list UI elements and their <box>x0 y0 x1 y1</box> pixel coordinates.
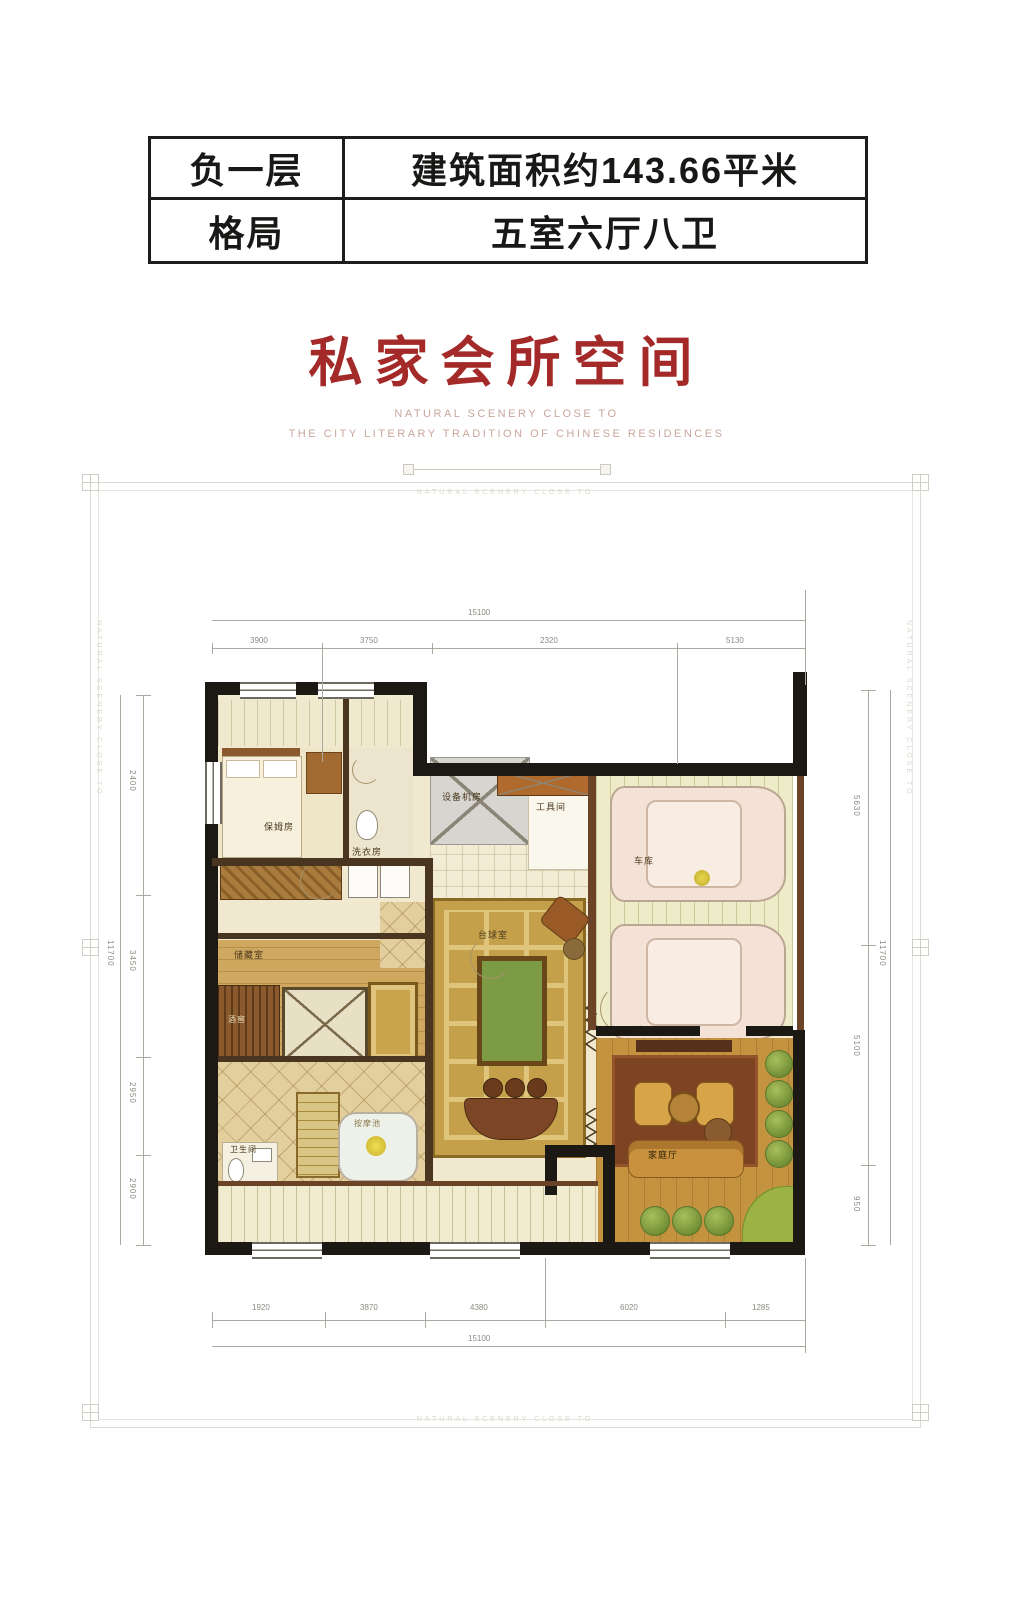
side-table <box>563 938 585 960</box>
interior-wall <box>218 1181 598 1186</box>
spec-row2-label: 格局 <box>151 200 345 261</box>
dresser <box>306 752 342 794</box>
window <box>205 762 222 824</box>
dim-tick <box>725 1312 726 1328</box>
hall-rug <box>368 982 418 1062</box>
corner-mark <box>82 1404 99 1421</box>
dim-tick <box>545 1258 546 1328</box>
room-label-storage: 储藏室 <box>234 948 264 961</box>
dim-tick <box>212 643 213 654</box>
dim-bottom-total: 15100 <box>468 1334 490 1343</box>
dim-left-seg2: 3450 <box>128 950 137 972</box>
toilet-icon <box>228 1158 244 1182</box>
spa-flower-icon <box>366 1136 386 1156</box>
dim-tick <box>861 945 876 946</box>
dim-tick <box>136 1155 151 1156</box>
interior-wall <box>218 1056 425 1062</box>
spec-row2-value: 五室六厅八卫 <box>345 200 865 261</box>
dim-line-left-total <box>120 695 121 1245</box>
dim-tick <box>212 1312 213 1328</box>
ornament-line <box>410 469 602 470</box>
dim-tick <box>136 695 151 696</box>
dim-extension <box>322 652 323 762</box>
dim-tick <box>432 643 433 654</box>
dim-tick <box>861 690 876 691</box>
toilet-icon <box>356 810 378 840</box>
sofa <box>628 1140 744 1178</box>
garage-side-wall <box>797 776 804 1030</box>
frame-caption-top: NATURAL SCENERY CLOSE TO <box>417 489 594 496</box>
armchair <box>634 1082 672 1126</box>
tv-cabinet <box>636 1040 732 1052</box>
window <box>430 1242 520 1259</box>
dim-top-seg4: 5130 <box>726 636 744 645</box>
stairs <box>296 1092 340 1178</box>
bar-stool <box>483 1078 503 1098</box>
garden-bush <box>765 1140 793 1168</box>
room-label-bedroom: 保姆房 <box>264 820 294 833</box>
dim-tick <box>136 1245 151 1246</box>
dim-bottom-seg4: 6020 <box>620 1303 638 1312</box>
door-arc <box>470 937 512 979</box>
spec-row1-value: 建筑面积约143.66平米 <box>345 139 865 200</box>
dim-left-seg3: 2950 <box>128 1082 137 1104</box>
subtitle-line2: THE CITY LITERARY TRADITION OF CHINESE R… <box>0 428 1013 440</box>
dim-bottom-seg5: 1285 <box>752 1303 770 1312</box>
subtitle-line1: NATURAL SCENERY CLOSE TO <box>0 408 1013 420</box>
room-label-billiards: 台球室 <box>478 928 508 941</box>
room-label-bath: 卫生间 <box>230 1144 257 1155</box>
dim-tick <box>136 895 151 896</box>
dim-right-total: 11700 <box>878 940 887 967</box>
dim-tick <box>805 1258 806 1353</box>
interior-wall <box>218 933 425 939</box>
outer-wall <box>413 682 427 776</box>
edge-mark-left <box>82 939 99 956</box>
window-well-strip <box>218 700 413 746</box>
dim-tick <box>136 1057 151 1058</box>
room-label-family: 家庭厅 <box>648 1148 678 1161</box>
room-label-garage: 车库 <box>634 854 654 867</box>
dim-extension <box>805 590 806 685</box>
ornament-square-left <box>403 464 414 475</box>
interior-wall <box>596 1026 700 1036</box>
dim-tick <box>425 1312 426 1328</box>
elevator <box>282 987 368 1062</box>
spec-row1-label: 负一层 <box>151 139 345 200</box>
door-arc <box>300 862 338 900</box>
dim-line-right-seg <box>868 690 869 1245</box>
dim-tick <box>861 1165 876 1166</box>
outer-wall <box>793 1030 805 1255</box>
edge-mark-right <box>912 939 929 956</box>
pillow <box>226 760 260 778</box>
window <box>240 682 296 699</box>
outer-wall <box>205 682 427 695</box>
outer-wall <box>545 1145 557 1195</box>
interior-wall <box>425 858 433 1185</box>
room-label-laundry: 洗衣房 <box>352 845 382 858</box>
floorplan-page: 负一层 建筑面积约143.66平米 格局 五室六厅八卫 私家会所空间 NATUR… <box>0 0 1013 1600</box>
window <box>318 682 374 699</box>
washer-icon <box>348 864 378 898</box>
dim-right-seg3: 950 <box>852 1196 861 1212</box>
corner-mark <box>912 474 929 491</box>
dim-tick <box>325 1312 326 1328</box>
dim-line-bottom-seg <box>212 1320 805 1321</box>
room-label-tools: 工具间 <box>536 800 566 813</box>
outer-wall <box>425 763 807 776</box>
dim-left-seg4: 2900 <box>128 1178 137 1200</box>
room-label-spa: 按摩池 <box>354 1118 381 1129</box>
dim-top-seg2: 3750 <box>360 636 378 645</box>
dim-extension <box>677 652 678 764</box>
frame-caption-left: NATURAL SCENERY CLOSE TO <box>95 620 102 797</box>
garden-bush <box>765 1110 793 1138</box>
dim-line-left-seg <box>143 695 144 1245</box>
dim-right-seg2: 5100 <box>852 1035 861 1057</box>
interior-wall <box>746 1026 793 1036</box>
dim-left-total: 11700 <box>106 940 115 967</box>
interior-wall <box>588 776 596 1030</box>
dim-top-seg1: 3900 <box>250 636 268 645</box>
dim-top-total: 15100 <box>468 608 490 617</box>
dim-right-seg1: 5630 <box>852 795 861 817</box>
bar-stool <box>505 1078 525 1098</box>
shower-icon <box>352 756 380 784</box>
frame-caption-right: NATURAL SCENERY CLOSE TO <box>905 620 912 797</box>
terrace-bush <box>704 1206 734 1236</box>
frame-caption-bottom: NATURAL SCENERY CLOSE TO <box>417 1416 594 1423</box>
bar-stool <box>527 1078 547 1098</box>
flower-icon <box>694 870 710 886</box>
dryer-icon <box>380 864 410 898</box>
page-title: 私家会所空间 <box>0 318 1013 397</box>
room-label-equipment: 设备机房 <box>442 790 482 803</box>
spec-table: 负一层 建筑面积约143.66平米 格局 五室六厅八卫 <box>148 136 868 264</box>
dim-tick <box>861 1245 876 1246</box>
dim-left-seg1: 2400 <box>128 770 137 792</box>
window <box>650 1242 730 1259</box>
garden-bush <box>765 1050 793 1078</box>
interior-wall <box>212 858 433 866</box>
dim-top-seg3: 2320 <box>540 636 558 645</box>
patio-strip <box>218 1185 598 1242</box>
room-label-cellar: 酒窖 <box>228 1014 246 1025</box>
dim-line-top-total <box>212 620 805 621</box>
corner-mark <box>912 1404 929 1421</box>
ornament-square-right <box>600 464 611 475</box>
bed-headboard <box>222 748 300 756</box>
terrace-bush <box>640 1206 670 1236</box>
corner-mark <box>82 474 99 491</box>
dim-line-right-total <box>890 690 891 1245</box>
terrace-bush <box>672 1206 702 1236</box>
outer-wall <box>603 1145 615 1255</box>
dim-bottom-seg2: 3870 <box>360 1303 378 1312</box>
dim-bottom-seg3: 4380 <box>470 1303 488 1312</box>
coffee-table <box>668 1092 700 1124</box>
pillow <box>263 760 297 778</box>
outer-wall <box>793 672 807 772</box>
garden-bush <box>765 1080 793 1108</box>
interior-wall <box>343 695 349 858</box>
dim-line-top-seg <box>212 648 805 649</box>
dim-line-bottom-total <box>212 1346 805 1347</box>
dim-bottom-seg1: 1920 <box>252 1303 270 1312</box>
window <box>252 1242 322 1259</box>
